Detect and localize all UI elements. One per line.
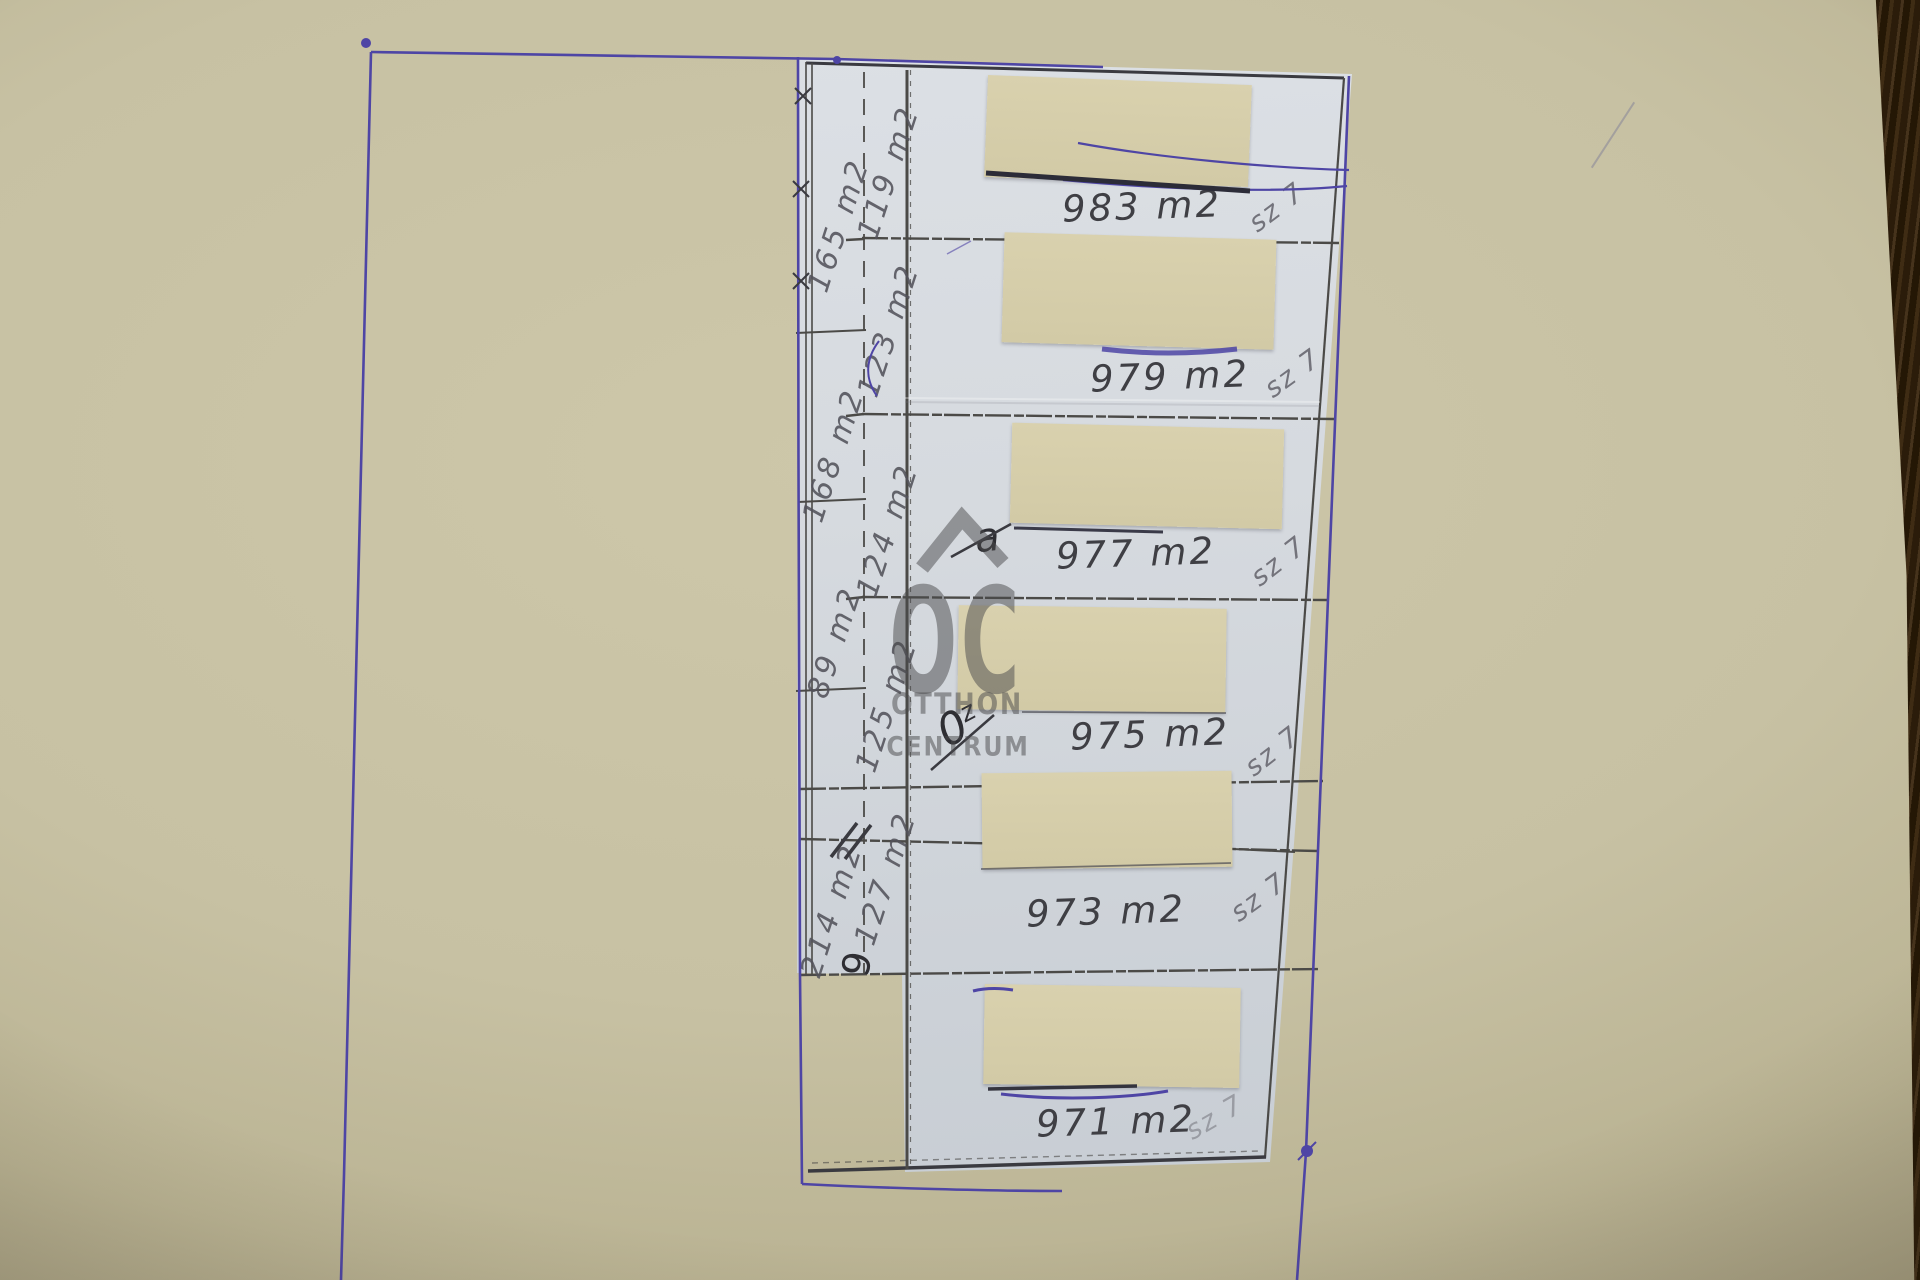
paste-patch-973 <box>982 771 1233 870</box>
parcel-area-label: 971 m2 <box>1035 1097 1196 1146</box>
parcel-area-label: 977 m2 <box>1055 529 1216 578</box>
parcel-area-label: 975 m2 <box>1069 710 1230 759</box>
parcel-area-label: 973 m2 <box>1025 887 1186 936</box>
parcel-area-label: 983 m2 <box>1061 182 1222 231</box>
paste-patch-971 <box>983 984 1241 1088</box>
paste-patch-979 <box>1002 232 1277 350</box>
watermark-line2: CENTRUM <box>886 732 1029 763</box>
paste-patch-977 <box>1010 423 1284 530</box>
paste-patch-983 <box>984 75 1252 187</box>
watermark-line1: OTTHON <box>891 687 1023 721</box>
parcel-area-label: 979 m2 <box>1089 352 1250 401</box>
crossed-a-mark: a <box>973 514 1002 562</box>
photo-scene: 983 m2 979 m2 977 m2 975 m2 973 m2 971 m… <box>0 0 1920 1280</box>
